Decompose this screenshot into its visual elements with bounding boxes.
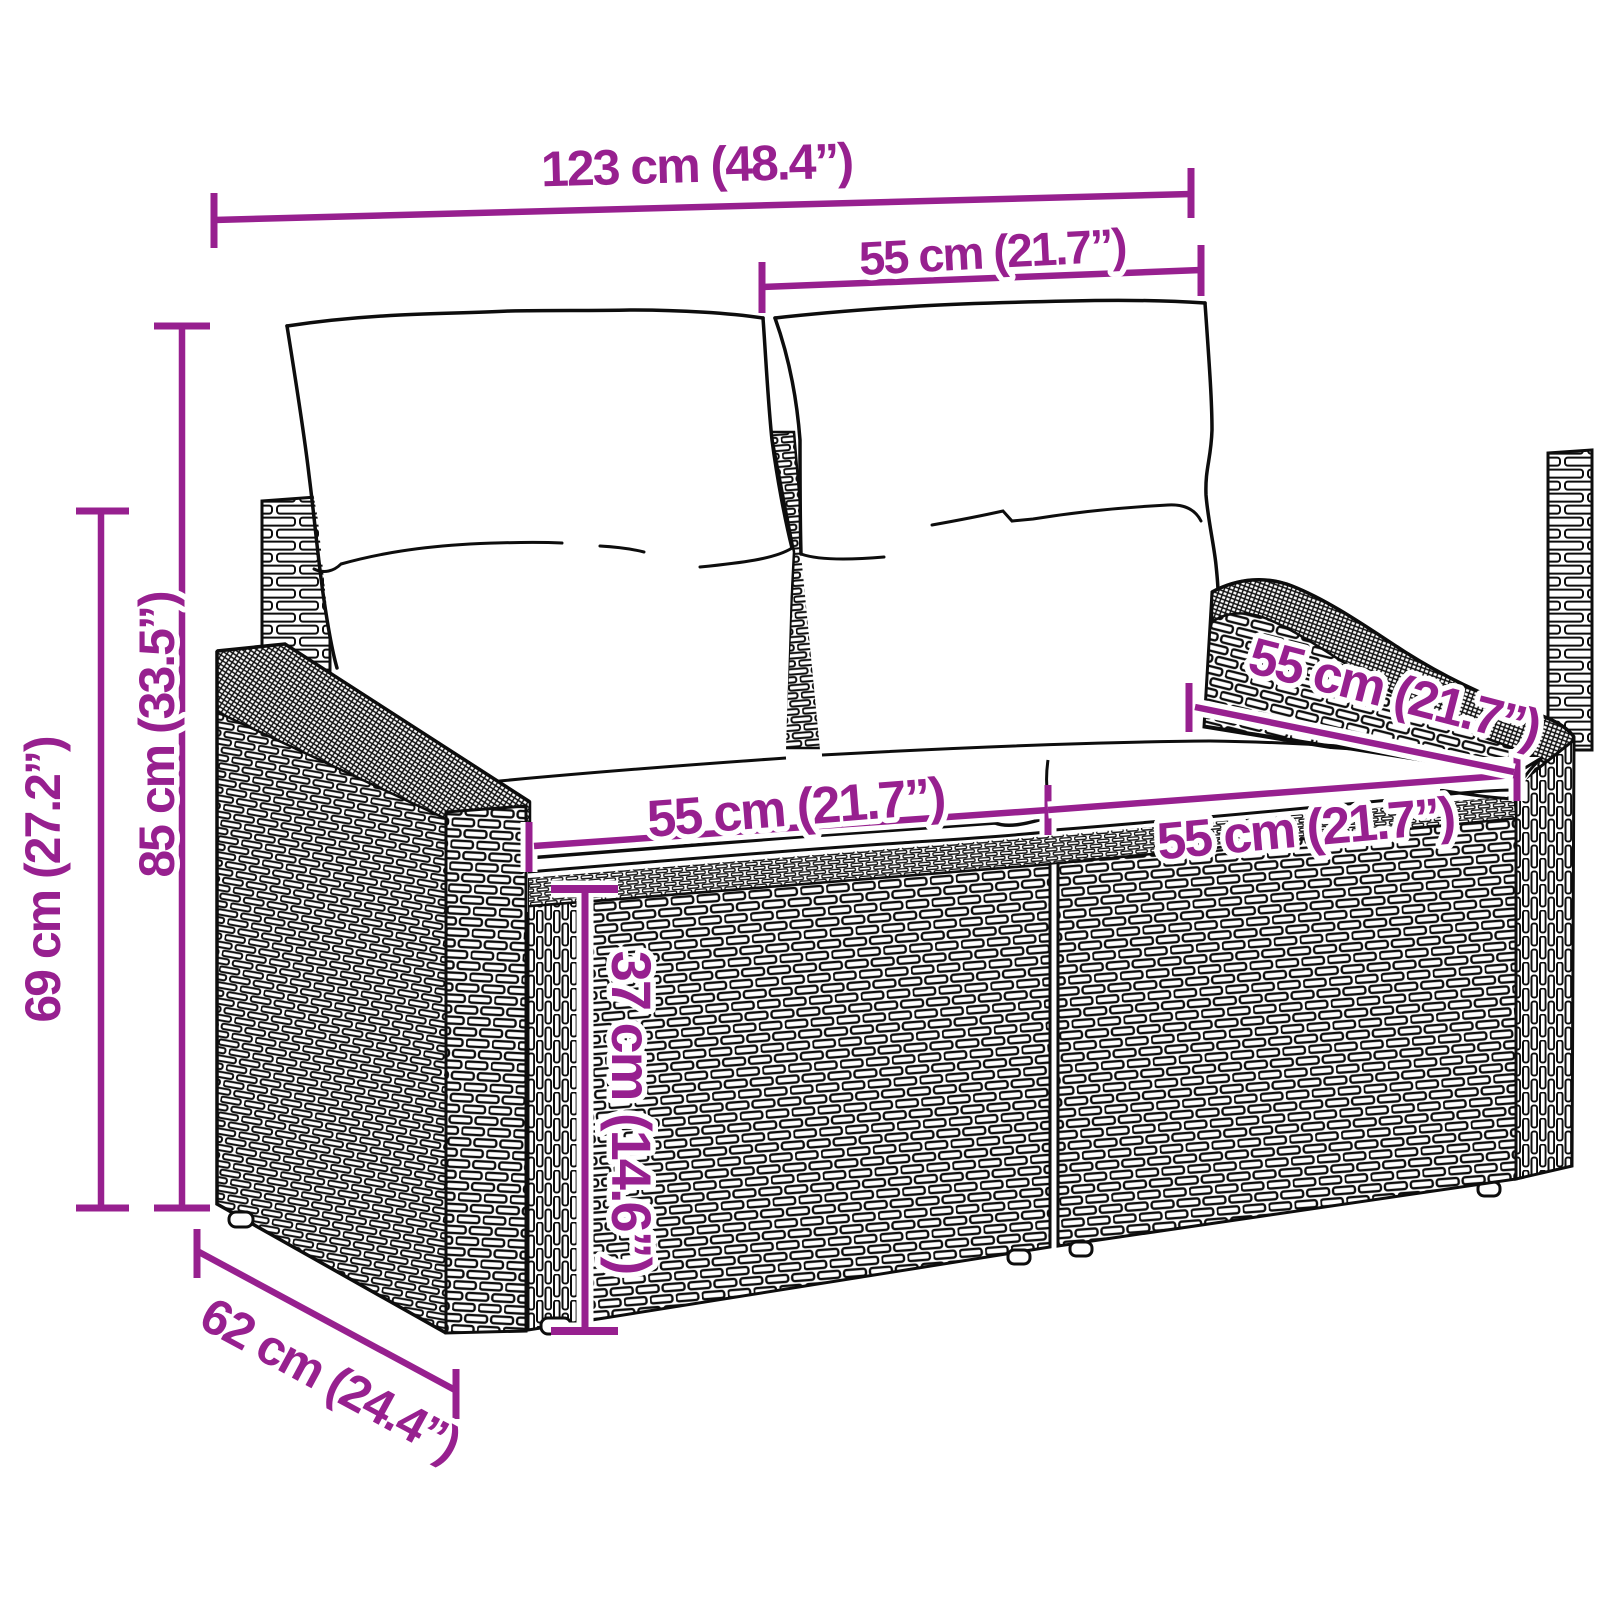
- svg-text:85 cm (33.5”): 85 cm (33.5”): [129, 592, 185, 878]
- svg-text:123 cm (48.4”): 123 cm (48.4”): [540, 133, 853, 198]
- svg-text:69 cm (27.2”): 69 cm (27.2”): [15, 737, 71, 1023]
- svg-text:37 cm (14.6”): 37 cm (14.6”): [600, 951, 663, 1274]
